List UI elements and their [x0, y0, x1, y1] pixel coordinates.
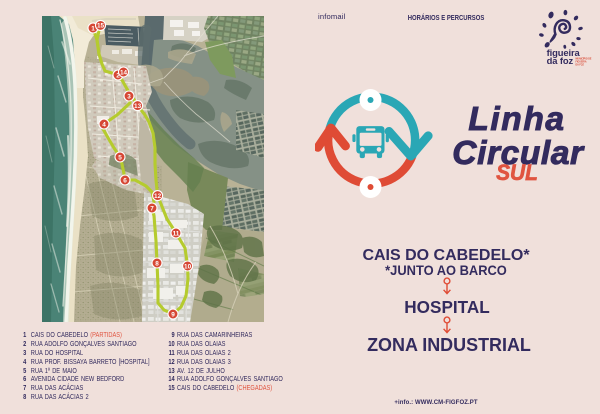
svg-text:5: 5 [118, 154, 122, 161]
svg-text:11: 11 [173, 230, 180, 237]
svg-text:da foz: da foz [547, 55, 574, 66]
svg-text:10: 10 [184, 263, 192, 270]
svg-text:9: 9 [171, 311, 175, 318]
svg-text:4: 4 [102, 121, 106, 128]
svg-text:13: 13 [134, 103, 142, 110]
svg-text:3: 3 [127, 93, 131, 100]
svg-text:MUNICÍPIO DE: MUNICÍPIO DE [576, 58, 592, 61]
svg-text:12: 12 [154, 193, 162, 200]
svg-text:DA FOZ: DA FOZ [576, 64, 585, 67]
svg-text:8: 8 [155, 260, 159, 267]
svg-text:14: 14 [120, 69, 128, 76]
svg-text:6: 6 [123, 177, 127, 184]
svg-text:1: 1 [91, 25, 95, 32]
svg-text:7: 7 [150, 205, 154, 212]
svg-text:FIGUEIRA: FIGUEIRA [576, 61, 587, 64]
svg-text:15: 15 [97, 23, 105, 30]
